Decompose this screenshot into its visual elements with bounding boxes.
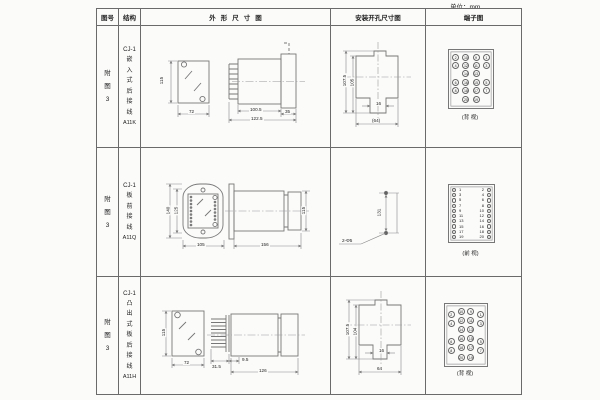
terminal-number: 19: [459, 235, 463, 239]
terminal-circle: [452, 219, 456, 223]
row3-dim-notch: 16: [378, 348, 385, 353]
row3-fig-cell: 附 图 3: [97, 277, 119, 394]
row3-outline-drawing: [141, 277, 331, 394]
row1-fig-no: 附 图 3: [104, 67, 111, 106]
row3-fig-no: 附 图 3: [104, 316, 111, 355]
header-mounting-label: 安装开孔尺寸图: [355, 12, 401, 22]
terminal-number: 16: [480, 225, 484, 229]
row1-dim-inner-height: 105: [349, 78, 354, 88]
row1-terminal-diagram: 2109141211314136161558181772019: [448, 49, 494, 109]
terminal-circle: [487, 230, 491, 234]
row3-structure: CJ-1 凸 出 式 板 后 接 线 A11H: [119, 277, 140, 394]
row1-fig-cell: 附 图 3: [97, 26, 119, 148]
terminal-circle: 12: [458, 317, 465, 324]
terminal-circle: [452, 214, 456, 218]
terminal-circle: 10: [462, 54, 469, 61]
row1-terminal-caption: (背 视): [438, 113, 502, 121]
terminal-circle: 6: [448, 338, 455, 345]
row3-mounting-cell: 107.5 104 16 64: [331, 277, 426, 394]
row2-dim-hole-spacing: 125: [173, 206, 178, 216]
terminal-number: 20: [480, 235, 484, 239]
row3-terminal-caption: (背 视): [434, 369, 496, 377]
datasheet-page: 单位：mm 图号 结构 外形尺寸图 安装开孔尺寸图 端子图 附 图 3 CJ-1…: [0, 0, 600, 400]
terminal-circle: [487, 214, 491, 218]
row2-mounting-cell: 131 2-Φ5: [331, 148, 426, 277]
row1-structure: CJ-1 嵌 入 式 后 接 线 A11K: [119, 26, 140, 147]
row2-structure: CJ-1 板 前 接 线 A11Q: [119, 148, 140, 276]
row2-dim-holes: 2-Φ5: [341, 238, 353, 243]
terminal-circle: [487, 224, 491, 228]
header-terminal: 端子图: [426, 9, 521, 26]
row1-structure-text: 嵌 入 式 后 接 线: [126, 55, 132, 118]
row1-dim-width: 72: [188, 109, 195, 114]
row3-structure-cell: CJ-1 凸 出 式 板 后 接 线 A11H: [119, 277, 141, 394]
terminal-circle: 4: [452, 62, 459, 69]
terminal-circle: [452, 235, 456, 239]
terminal-circle: [487, 188, 491, 192]
terminal-circle: 7: [477, 347, 484, 354]
terminal-circle: [487, 193, 491, 197]
terminal-circle: 10: [458, 308, 465, 315]
terminal-circle: [487, 204, 491, 208]
row3-dim-height: 115: [161, 328, 166, 337]
row2-code: A11Q: [123, 235, 137, 241]
row1-outline-drawing: [141, 26, 331, 148]
row2-model: CJ-1: [123, 183, 136, 189]
terminal-circle: 2: [448, 311, 455, 318]
terminal-circle: [452, 198, 456, 202]
terminal-number: 5: [459, 198, 461, 202]
terminal-circle: 15: [467, 335, 474, 342]
header-mounting: 安装开孔尺寸图: [331, 9, 426, 26]
row1-dim-notch: 16: [375, 101, 382, 106]
row3-dim-comb: 31.5: [211, 364, 222, 369]
terminal-circle: 1: [483, 54, 490, 61]
row3-terminal-diagram: 2109141211314136161558181772019: [444, 303, 488, 367]
terminal-circle: 19: [473, 96, 480, 103]
header-terminal-label: 端子图: [464, 12, 484, 22]
row2-fig-no: 附 图 3: [104, 193, 111, 232]
row3-dim-length: 126: [258, 368, 268, 373]
terminal-circle: [452, 209, 456, 213]
spec-table: 图号 结构 外形尺寸图 安装开孔尺寸图 端子图 附 图 3 CJ-1 嵌 入 式…: [96, 8, 522, 395]
terminal-circle: [487, 235, 491, 239]
terminal-circle: [452, 230, 456, 234]
terminal-circle: 18: [458, 344, 465, 351]
terminal-circle: 2: [452, 54, 459, 61]
header-fig-no: 图号: [97, 9, 119, 26]
terminal-circle: 7: [483, 87, 490, 94]
row3-outline-cell: 115 72 31.5 9.5 126: [141, 277, 331, 394]
row1-terminal-cell: 2109141211314136161558181772019 (背 视): [426, 26, 521, 148]
terminal-circle: 12: [462, 62, 469, 69]
terminal-circle: 6: [452, 79, 459, 86]
terminal-circle: [452, 193, 456, 197]
terminal-number: 15: [459, 225, 463, 229]
terminal-circle: 14: [462, 70, 469, 77]
terminal-circle: [452, 204, 456, 208]
terminal-circle: 3: [477, 320, 484, 327]
terminal-circle: 15: [473, 79, 480, 86]
row1-dim-cutout-width: (64): [371, 118, 381, 123]
terminal-circle: 11: [473, 62, 480, 69]
row1-dim-rear-length: 35: [284, 109, 291, 114]
terminal-circle: 17: [473, 87, 480, 94]
row2-fig-cell: 附 图 3: [97, 148, 119, 277]
row1-dim-outer-height: 107.5: [342, 74, 347, 88]
header-outline: 外形尺寸图: [141, 9, 331, 26]
row1-dim-overall-length: 122.5: [250, 116, 264, 121]
row3-model: CJ-1: [123, 291, 136, 297]
terminal-circle: [487, 219, 491, 223]
row1-dim-body-length: 100.5: [249, 107, 263, 112]
row2-terminal-diagram: 1357911131517192468101214161820: [448, 184, 495, 243]
terminal-circle: 17: [467, 344, 474, 351]
row2-structure-cell: CJ-1 板 前 接 线 A11Q: [119, 148, 141, 277]
header-fig-no-label: 图号: [101, 12, 114, 22]
terminal-circle: 3: [483, 62, 490, 69]
row2-terminal-cell: 1357911131517192468101214161820 (前 视): [426, 148, 521, 277]
terminal-circle: [487, 209, 491, 213]
terminal-circle: 9: [473, 54, 480, 61]
terminal-circle: 14: [458, 326, 465, 333]
row3-code: A11H: [123, 374, 136, 380]
row1-mounting-cell: 107.5 105 16 (64): [331, 26, 426, 148]
row1-outline-cell: 115 72 100.5 122.5 35: [141, 26, 331, 148]
header-outline-label: 外形尺寸图: [204, 12, 267, 22]
row2-dim-height: 140: [165, 206, 170, 216]
terminal-number: 13: [459, 219, 463, 223]
terminal-number: 6: [482, 198, 484, 202]
row3-terminal-cell: 2109141211314136161558181772019 (背 视): [426, 277, 521, 394]
terminal-circle: [452, 224, 456, 228]
row2-outline-cell: 140 125 105 156 115: [141, 148, 331, 277]
terminal-circle: 16: [458, 335, 465, 342]
row3-dim-width: 72: [183, 360, 190, 365]
row3-dim-cutout-width: 64: [376, 366, 383, 371]
terminal-circle: 1: [477, 311, 484, 318]
terminal-circle: 18: [462, 87, 469, 94]
row2-dim-spacing: 131: [376, 208, 381, 218]
row1-model: CJ-1: [123, 47, 136, 53]
terminal-circle: [487, 198, 491, 202]
row2-terminal-caption: (前 视): [438, 249, 503, 257]
terminal-circle: 11: [467, 317, 474, 324]
row2-dim-length: 156: [260, 242, 270, 247]
row3-structure-text: 凸 出 式 板 后 接 线: [126, 299, 132, 373]
row2-dim-width: 105: [196, 242, 206, 247]
terminal-circle: 19: [467, 354, 474, 361]
terminal-circle: 5: [483, 79, 490, 86]
row3-dim-inner-height: 104: [352, 327, 357, 337]
row3-dim-stub: 9.5: [241, 357, 249, 362]
terminal-circle: 8: [448, 347, 455, 354]
terminal-number: 14: [480, 219, 484, 223]
terminal-circle: 4: [448, 320, 455, 327]
terminal-circle: 20: [462, 96, 469, 103]
header-structure-label: 结构: [123, 12, 136, 22]
row2-structure-text: 板 前 接 线: [126, 191, 132, 233]
terminal-circle: 16: [462, 79, 469, 86]
terminal-circle: 13: [467, 326, 474, 333]
terminal-circle: 9: [467, 308, 474, 315]
row3-dim-outer-height: 107.5: [345, 323, 350, 337]
row1-structure-cell: CJ-1 嵌 入 式 后 接 线 A11K: [119, 26, 141, 148]
terminal-circle: 5: [477, 338, 484, 345]
header-structure: 结构: [119, 9, 141, 26]
row1-dim-height: 115: [159, 76, 164, 85]
row1-code: A11K: [123, 120, 136, 126]
terminal-circle: 13: [473, 70, 480, 77]
terminal-circle: [452, 188, 456, 192]
row2-dim-side-height: 115: [301, 206, 306, 215]
terminal-circle: 20: [458, 354, 465, 361]
terminal-circle: 8: [452, 87, 459, 94]
